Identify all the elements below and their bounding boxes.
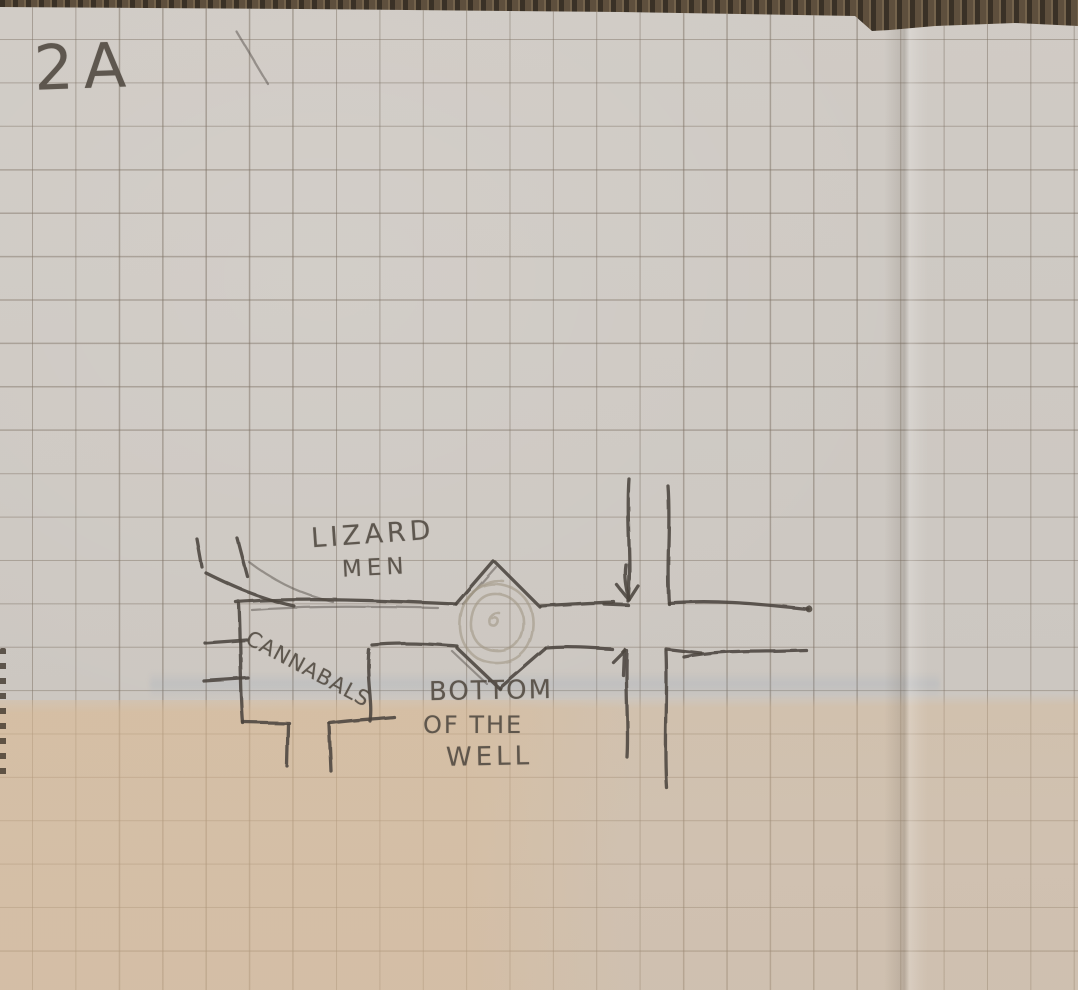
well-label-line1: BOTTOM: [429, 675, 554, 707]
north-south-corridor: [626, 479, 669, 788]
pencil-map-drawing: [0, 0, 1078, 990]
stray-pencil-mark: [237, 32, 268, 84]
photo-of-hand-drawn-dungeon-map: 2A LIZARD MEN CANNABALS BOTTOM OF THE WE…: [0, 0, 1078, 990]
page-label: 2A: [33, 28, 137, 105]
stair-mark-icon: [613, 650, 625, 675]
graph-paper-sheet: 2A LIZARD MEN CANNABALS BOTTOM OF THE WE…: [0, 0, 1078, 990]
well-circle: [460, 581, 533, 663]
well-label-line3: WELL: [446, 741, 534, 773]
main-corridor-east-west: [236, 600, 812, 657]
well-label-line2: OF THE: [423, 711, 523, 739]
direction-arrow: [604, 565, 638, 605]
lizard-men-label-line2: MEN: [341, 553, 409, 582]
